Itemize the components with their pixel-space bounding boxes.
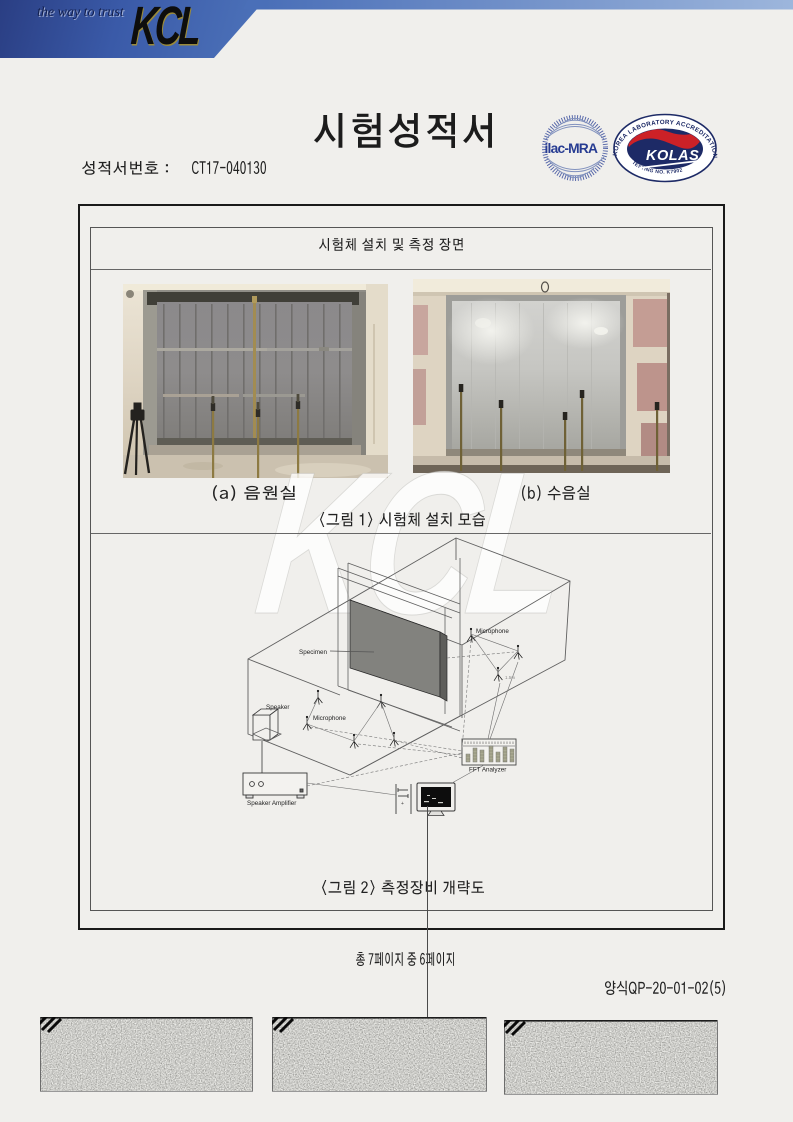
svg-text:Speaker: Speaker <box>266 704 289 711</box>
svg-text:1.5m: 1.5m <box>505 675 515 680</box>
svg-text:Speaker Amplifier: Speaker Amplifier <box>247 800 296 807</box>
svg-text:FFT Analyzer: FFT Analyzer <box>469 767 506 774</box>
svg-text:+: + <box>401 801 404 807</box>
svg-text:Microphone: Microphone <box>313 715 346 722</box>
svg-text:Microphone: Microphone <box>476 628 509 635</box>
svg-text:Specimen: Specimen <box>299 649 327 656</box>
